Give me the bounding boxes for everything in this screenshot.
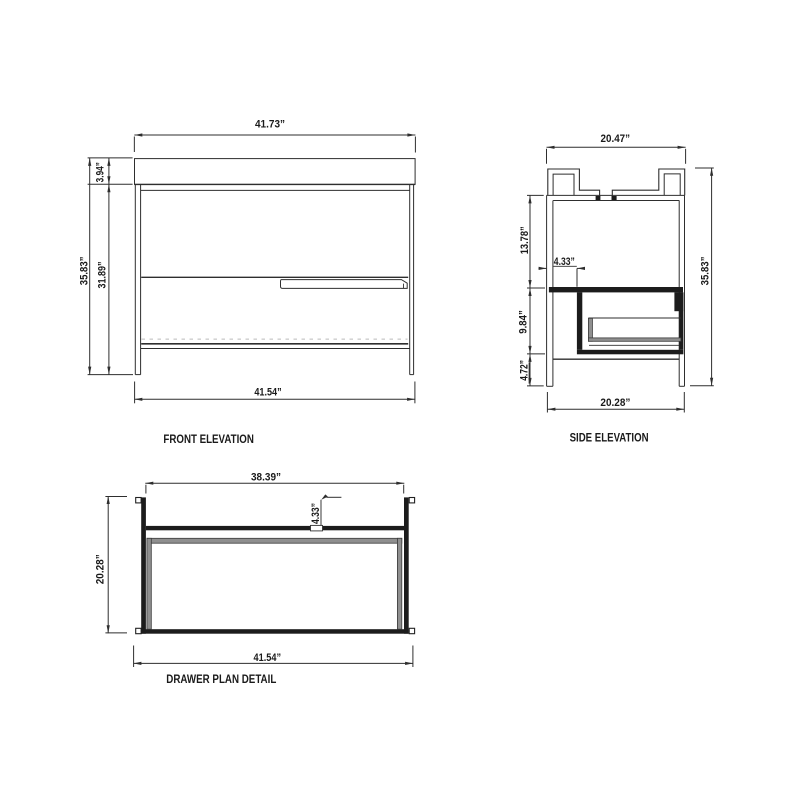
svg-text:4.33”: 4.33” <box>310 503 322 524</box>
svg-text:20.28”: 20.28” <box>94 554 106 584</box>
svg-text:SIDE ELEVATION: SIDE ELEVATION <box>570 431 649 445</box>
svg-text:20.28”: 20.28” <box>600 397 630 409</box>
svg-text:35.83”: 35.83” <box>699 257 711 286</box>
svg-text:35.83”: 35.83” <box>79 257 91 286</box>
svg-text:13.78”: 13.78” <box>519 226 531 254</box>
svg-text:31.89”: 31.89” <box>96 262 108 289</box>
svg-text:9.84”: 9.84” <box>518 310 530 334</box>
svg-text:FRONT ELEVATION: FRONT ELEVATION <box>163 432 254 446</box>
svg-text:3.94”: 3.94” <box>94 162 106 182</box>
svg-text:DRAWER PLAN DETAIL: DRAWER PLAN DETAIL <box>166 672 276 686</box>
svg-text:41.54”: 41.54” <box>254 386 281 398</box>
svg-text:4.72”: 4.72” <box>518 360 530 381</box>
svg-text:38.39”: 38.39” <box>251 472 281 484</box>
svg-text:41.54”: 41.54” <box>254 652 282 664</box>
svg-text:20.47”: 20.47” <box>601 133 631 145</box>
svg-text:41.73”: 41.73” <box>255 119 285 131</box>
